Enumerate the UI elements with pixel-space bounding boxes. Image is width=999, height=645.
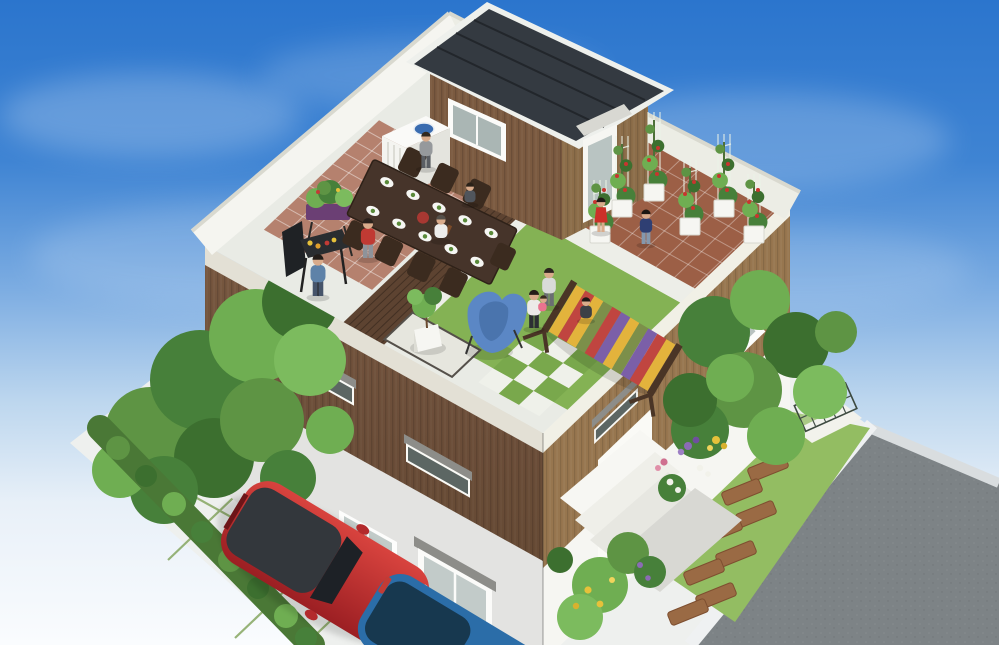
- flower: [707, 445, 713, 451]
- flower: [637, 562, 643, 568]
- planter-box: [680, 218, 700, 235]
- tree-foliage: [306, 406, 354, 454]
- flower: [712, 436, 720, 444]
- tree-foliage: [634, 556, 666, 588]
- person-leg: [426, 155, 430, 168]
- person-leg: [421, 155, 425, 168]
- rendering-canvas: [0, 0, 999, 645]
- person-shadow: [462, 203, 479, 208]
- scene-rooftop-garden-house: [0, 0, 999, 645]
- tree-foliage: [557, 594, 603, 640]
- flower: [684, 442, 692, 450]
- person-shadow: [577, 318, 595, 324]
- person-leg: [549, 292, 553, 306]
- flower: [697, 465, 703, 471]
- flower: [609, 577, 615, 583]
- tree-foliage: [815, 311, 857, 353]
- person-leg: [318, 281, 323, 296]
- tomato-foliage: [591, 183, 600, 192]
- person-shadow: [416, 166, 436, 172]
- tomato-fruit: [691, 206, 695, 210]
- baby-bundle: [538, 303, 546, 311]
- person-leg: [313, 281, 318, 296]
- flower: [705, 471, 711, 477]
- person-shadow: [592, 230, 611, 236]
- tree-foliage: [547, 547, 573, 573]
- tomato-foliage: [752, 190, 765, 203]
- tomato-fruit: [647, 158, 651, 162]
- planter-box: [612, 200, 632, 217]
- person-shadow: [357, 256, 379, 263]
- person-torso: [464, 190, 475, 202]
- person-leg: [646, 232, 650, 244]
- planter-box: [644, 184, 664, 201]
- flower: [678, 449, 684, 455]
- person-leg: [597, 222, 600, 232]
- person-leg: [642, 232, 646, 244]
- person-torso: [311, 265, 326, 282]
- tomato-fruit: [747, 200, 751, 204]
- tomato-fruit: [726, 162, 730, 166]
- tomato-fruit: [717, 174, 721, 178]
- tomato-fruit: [692, 180, 696, 184]
- tree-foliage: [793, 365, 847, 419]
- person-shadow: [524, 326, 545, 333]
- tree-foliage: [274, 324, 346, 396]
- tomato-fruit: [656, 146, 660, 150]
- flower: [693, 437, 700, 444]
- flower: [667, 479, 674, 486]
- person-dress: [594, 207, 607, 222]
- flower: [584, 586, 591, 593]
- cloud: [0, 73, 300, 157]
- tomato-fruit: [655, 172, 659, 176]
- planter-box: [744, 226, 764, 243]
- flower: [645, 575, 651, 581]
- hedge-texture: [162, 492, 186, 516]
- tomato-fruit: [756, 188, 760, 192]
- tomato-fruit: [602, 188, 606, 192]
- tomato-fruit: [615, 174, 619, 178]
- tomato-fruit: [683, 192, 687, 196]
- tomato-foliage: [715, 144, 724, 153]
- flower: [660, 458, 667, 465]
- person-leg: [529, 314, 533, 328]
- hedge-texture: [135, 465, 157, 487]
- person-torso: [640, 218, 652, 232]
- tree-foliage: [747, 407, 805, 465]
- person-shadow: [637, 242, 656, 248]
- flower: [675, 487, 681, 493]
- planter-box: [714, 200, 734, 217]
- tree-foliage: [658, 474, 686, 502]
- tomato-foliage: [642, 155, 658, 171]
- tomato-fruit: [623, 188, 627, 192]
- tomato-fruit: [593, 200, 597, 204]
- tomato-foliage: [645, 124, 654, 133]
- flower: [655, 465, 661, 471]
- tomato-foliage: [745, 179, 754, 188]
- person-torso: [435, 224, 448, 238]
- person-shadow: [307, 294, 330, 301]
- person-leg: [368, 244, 373, 258]
- person-torso: [580, 306, 592, 319]
- person-leg: [363, 244, 368, 258]
- tomato-fruit: [624, 162, 628, 166]
- hedge-texture: [191, 521, 213, 543]
- person-leg: [601, 222, 604, 232]
- flower: [573, 603, 579, 609]
- flower: [597, 601, 604, 608]
- tomato-fruit: [755, 214, 759, 218]
- flower: [721, 443, 727, 449]
- person-shadow: [431, 238, 451, 244]
- person-torso: [420, 141, 433, 156]
- person-leg: [534, 314, 538, 328]
- person-torso: [361, 228, 375, 245]
- tomato-foliage: [613, 146, 622, 155]
- tomato-fruit: [725, 188, 729, 192]
- tree-foliage: [706, 354, 754, 402]
- tomato-foliage: [681, 168, 690, 177]
- person-torso: [542, 278, 556, 294]
- hedge-texture: [106, 436, 130, 460]
